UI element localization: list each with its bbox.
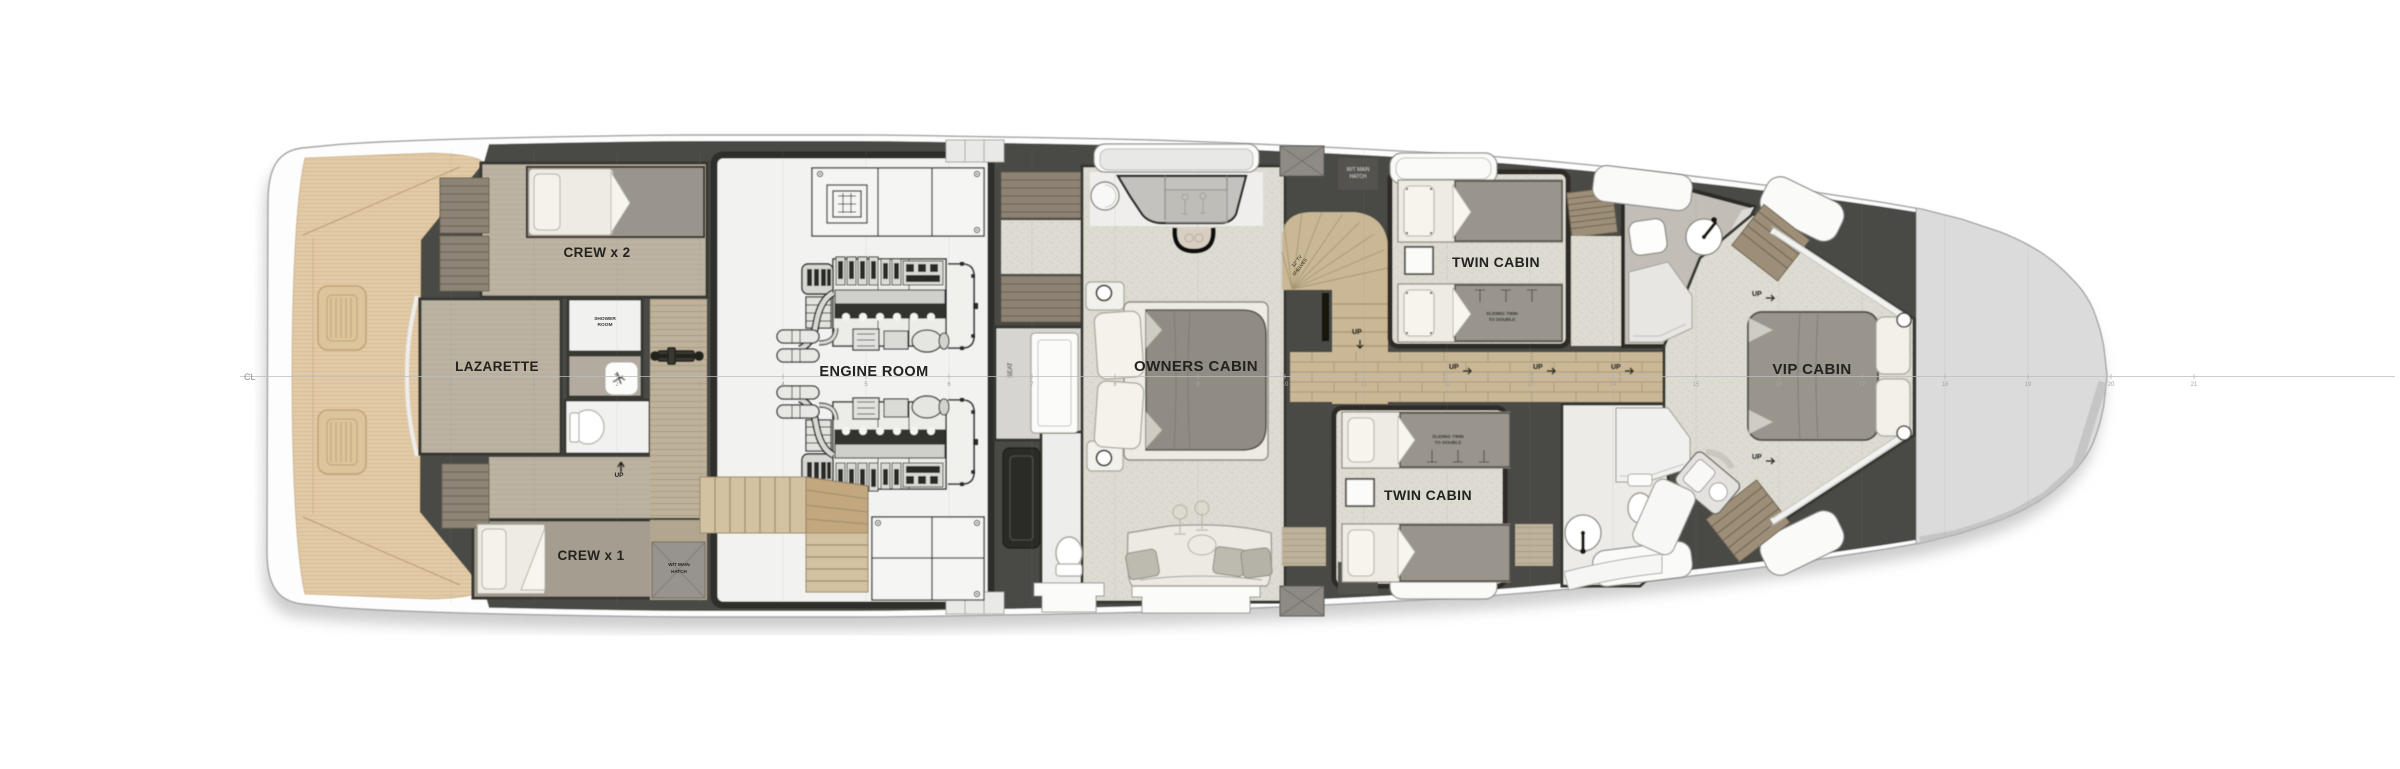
svg-text:14: 14 (1610, 382, 1617, 388)
svg-text:20: 20 (2108, 382, 2115, 388)
svg-text:13: 13 (1527, 382, 1534, 388)
svg-text:TWIN CABIN: TWIN CABIN (1452, 254, 1540, 270)
svg-text:16: 16 (1776, 382, 1783, 388)
svg-text:SLIDING TWIN: SLIDING TWIN (1432, 434, 1464, 439)
svg-text:ROOM: ROOM (598, 322, 613, 328)
svg-text:VIP CABIN: VIP CABIN (1772, 361, 1851, 378)
svg-text:12: 12 (1444, 382, 1451, 388)
svg-text:11: 11 (1361, 382, 1368, 388)
svg-text:ENGINE ROOM: ENGINE ROOM (819, 364, 928, 380)
svg-text:HATCH: HATCH (1350, 174, 1367, 180)
svg-text:UP: UP (614, 472, 624, 479)
svg-text:UP: UP (1449, 364, 1459, 371)
svg-text:UP: UP (1352, 329, 1362, 336)
svg-text:UP: UP (1611, 364, 1621, 371)
svg-text:SHOWER: SHOWER (594, 316, 616, 322)
svg-text:LAZARETTE: LAZARETTE (455, 359, 539, 374)
svg-text:TWIN CABIN: TWIN CABIN (1384, 487, 1472, 503)
svg-text:OWNERS CABIN: OWNERS CABIN (1134, 358, 1258, 375)
svg-text:10: 10 (1282, 382, 1289, 388)
svg-text:CL: CL (244, 372, 256, 382)
svg-text:SEAT: SEAT (1008, 362, 1014, 378)
svg-text:SLIDING TWIN: SLIDING TWIN (1486, 311, 1518, 316)
svg-text:18: 18 (1942, 382, 1949, 388)
svg-text:15: 15 (1693, 382, 1700, 388)
svg-text:W/T MAIN: W/T MAIN (668, 562, 690, 567)
svg-text:CREW x 2: CREW x 2 (564, 245, 631, 260)
svg-text:UP: UP (1533, 364, 1543, 371)
svg-text:TO DOUBLE: TO DOUBLE (1435, 440, 1462, 445)
svg-text:CREW x 1: CREW x 1 (558, 548, 625, 563)
svg-text:17: 17 (1859, 382, 1866, 388)
svg-text:21: 21 (2191, 382, 2198, 388)
svg-text:19: 19 (2025, 382, 2032, 388)
svg-text:UP: UP (1752, 454, 1762, 461)
svg-text:UP: UP (1752, 291, 1762, 298)
svg-text:HATCH: HATCH (671, 569, 687, 574)
svg-text:TO DOUBLE: TO DOUBLE (1489, 317, 1516, 322)
svg-text:W/T MAIN: W/T MAIN (1347, 167, 1370, 173)
